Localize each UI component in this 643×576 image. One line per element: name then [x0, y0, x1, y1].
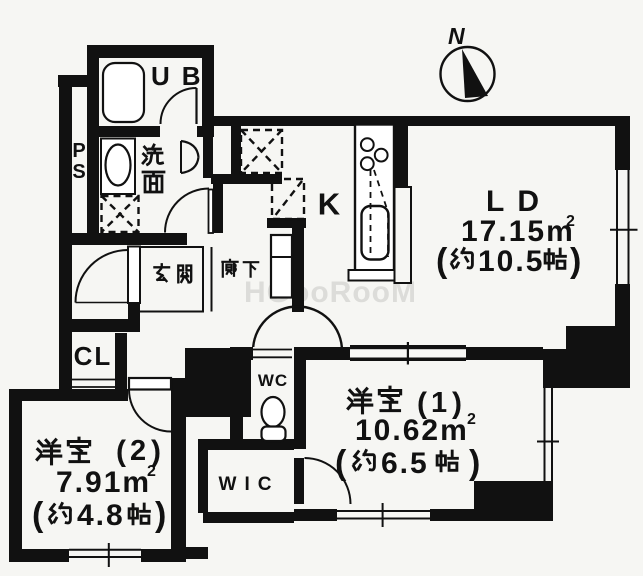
svg-text:LD: LD — [486, 185, 552, 218]
svg-text:): ) — [570, 242, 581, 280]
svg-text:(: ( — [32, 496, 44, 534]
svg-text:(: ( — [335, 444, 347, 482]
svg-text:17.15m: 17.15m — [461, 215, 575, 248]
svg-text:2: 2 — [147, 463, 156, 480]
svg-text:S: S — [72, 161, 85, 183]
svg-text:10.5: 10.5 — [478, 245, 544, 278]
svg-text:4.8: 4.8 — [77, 499, 125, 532]
svg-text:): ) — [469, 444, 480, 482]
svg-text:P: P — [72, 140, 85, 162]
svg-text:10.62m: 10.62m — [355, 414, 469, 447]
svg-text:WC: WC — [258, 371, 288, 390]
svg-text:N: N — [448, 23, 465, 49]
svg-text:UB: UB — [151, 61, 213, 91]
svg-text:2: 2 — [130, 435, 146, 467]
svg-text:2: 2 — [566, 213, 575, 230]
svg-text:K: K — [318, 187, 341, 222]
svg-text:WIC: WIC — [219, 474, 280, 495]
svg-text:(: ( — [116, 435, 126, 468]
svg-text:7.91m: 7.91m — [56, 466, 151, 499]
svg-text:CL: CL — [74, 341, 113, 371]
svg-text:(: ( — [436, 242, 448, 280]
svg-text:6.5: 6.5 — [381, 447, 429, 480]
svg-text:2: 2 — [467, 411, 476, 428]
svg-text:): ) — [155, 496, 166, 534]
